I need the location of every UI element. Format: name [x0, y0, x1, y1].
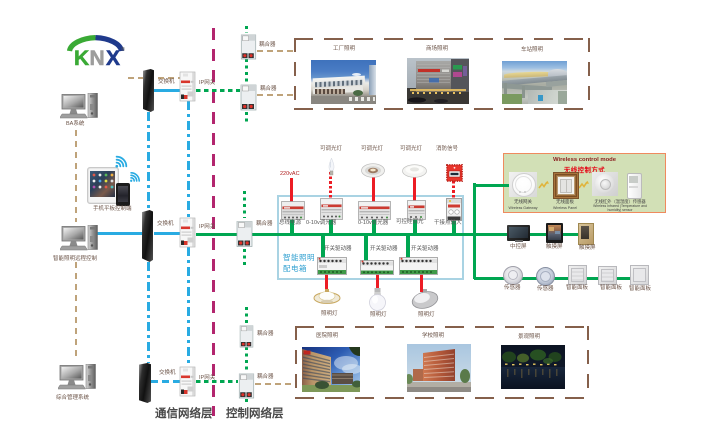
svg-text:N: N [90, 47, 105, 67]
svg-text:K: K [74, 47, 89, 67]
svg-text:X: X [106, 47, 120, 67]
svg-text:®: ® [121, 46, 125, 53]
